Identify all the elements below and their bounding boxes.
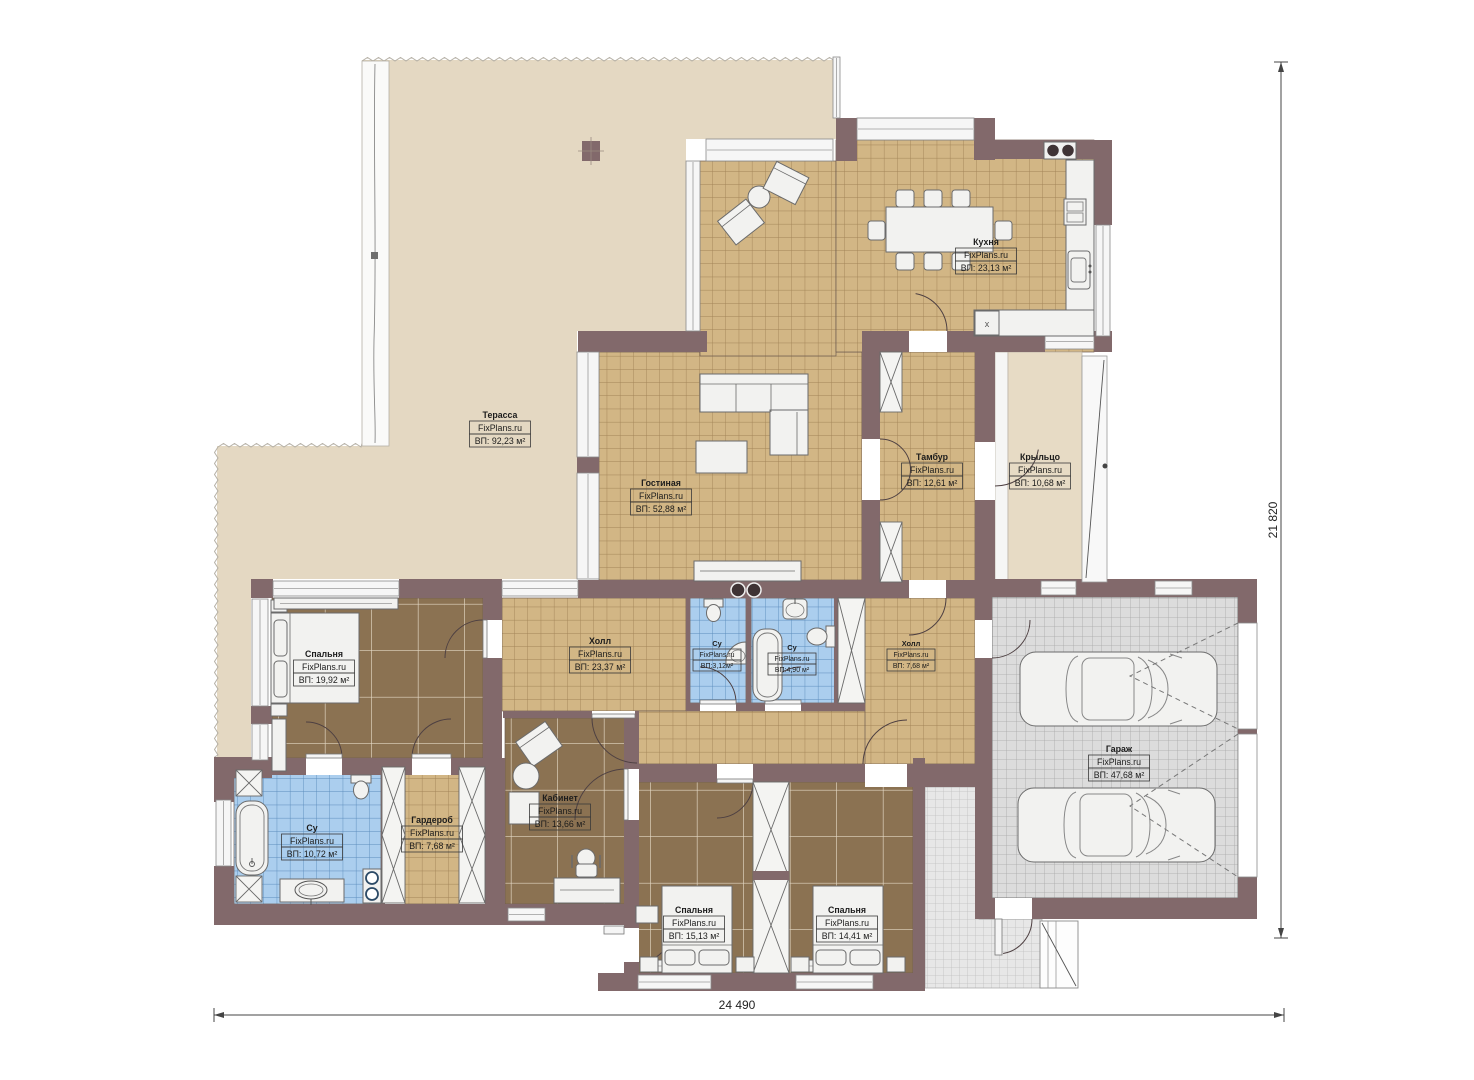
svg-text:Су: Су [306,823,317,833]
svg-text:Кабинет: Кабинет [542,793,578,803]
svg-text:FixPlans.ru: FixPlans.ru [302,662,346,672]
svg-text:Тамбур: Тамбур [916,452,949,462]
svg-text:ВП: 7,68 м²: ВП: 7,68 м² [409,841,455,851]
svg-text:FixPlans.ru: FixPlans.ru [964,250,1008,260]
svg-text:FixPlans.ru: FixPlans.ru [910,465,954,475]
svg-text:FixPlans.ru: FixPlans.ru [672,918,716,928]
svg-text:Терасса: Терасса [483,410,518,420]
svg-text:21 820: 21 820 [1266,501,1280,538]
svg-text:Гостиная: Гостиная [641,478,681,488]
svg-text:Холл: Холл [902,639,921,648]
svg-text:ВП: 23,37 м²: ВП: 23,37 м² [575,662,626,672]
svg-text:ВП:4,90 м²: ВП:4,90 м² [775,667,810,674]
svg-text:FixPlans.ru: FixPlans.ru [478,423,522,433]
svg-text:Спальня: Спальня [675,905,713,915]
svg-text:ВП: 47,68 м²: ВП: 47,68 м² [1094,770,1145,780]
svg-text:ВП: 19,92 м²: ВП: 19,92 м² [299,675,350,685]
svg-text:FixPlans.ru: FixPlans.ru [578,649,622,659]
svg-text:Спальня: Спальня [305,649,343,659]
svg-text:Кухня: Кухня [973,237,999,247]
svg-text:FixPlans.ru: FixPlans.ru [893,652,928,659]
svg-text:FixPlans.ru: FixPlans.ru [538,806,582,816]
svg-text:ВП: 7,68 м²: ВП: 7,68 м² [893,663,930,670]
svg-text:ВП: 52,88 м²: ВП: 52,88 м² [636,504,687,514]
svg-text:Гардероб: Гардероб [411,815,453,825]
svg-text:ВП: 12,61 м²: ВП: 12,61 м² [907,478,958,488]
svg-text:FixPlans.ru: FixPlans.ru [290,836,334,846]
svg-text:ВП: 10,68 м²: ВП: 10,68 м² [1015,478,1066,488]
svg-text:ВП: 10,72 м²: ВП: 10,72 м² [287,849,338,859]
svg-text:ВП: 15,13 м²: ВП: 15,13 м² [669,931,720,941]
svg-text:FixPlans.ru: FixPlans.ru [699,652,734,659]
svg-text:ВП: 13,66 м²: ВП: 13,66 м² [535,819,586,829]
svg-text:24 490: 24 490 [719,998,756,1012]
svg-text:ВП:3,12м²: ВП:3,12м² [701,663,734,670]
svg-text:FixPlans.ru: FixPlans.ru [774,656,809,663]
svg-text:ВП: 14,41 м²: ВП: 14,41 м² [822,931,873,941]
svg-text:ВП: 92,23 м²: ВП: 92,23 м² [475,436,526,446]
svg-text:Холл: Холл [589,636,611,646]
svg-text:Су: Су [787,643,797,652]
svg-text:FixPlans.ru: FixPlans.ru [410,828,454,838]
svg-text:Гараж: Гараж [1106,744,1133,754]
svg-text:FixPlans.ru: FixPlans.ru [825,918,869,928]
svg-text:FixPlans.ru: FixPlans.ru [1097,757,1141,767]
svg-text:Крыльцо: Крыльцо [1020,452,1061,462]
svg-text:FixPlans.ru: FixPlans.ru [1018,465,1062,475]
svg-text:Су: Су [712,639,722,648]
svg-text:Спальня: Спальня [828,905,866,915]
svg-text:ВП: 23,13 м²: ВП: 23,13 м² [961,263,1012,273]
svg-text:FixPlans.ru: FixPlans.ru [639,491,683,501]
svg-text:x: x [985,319,990,329]
